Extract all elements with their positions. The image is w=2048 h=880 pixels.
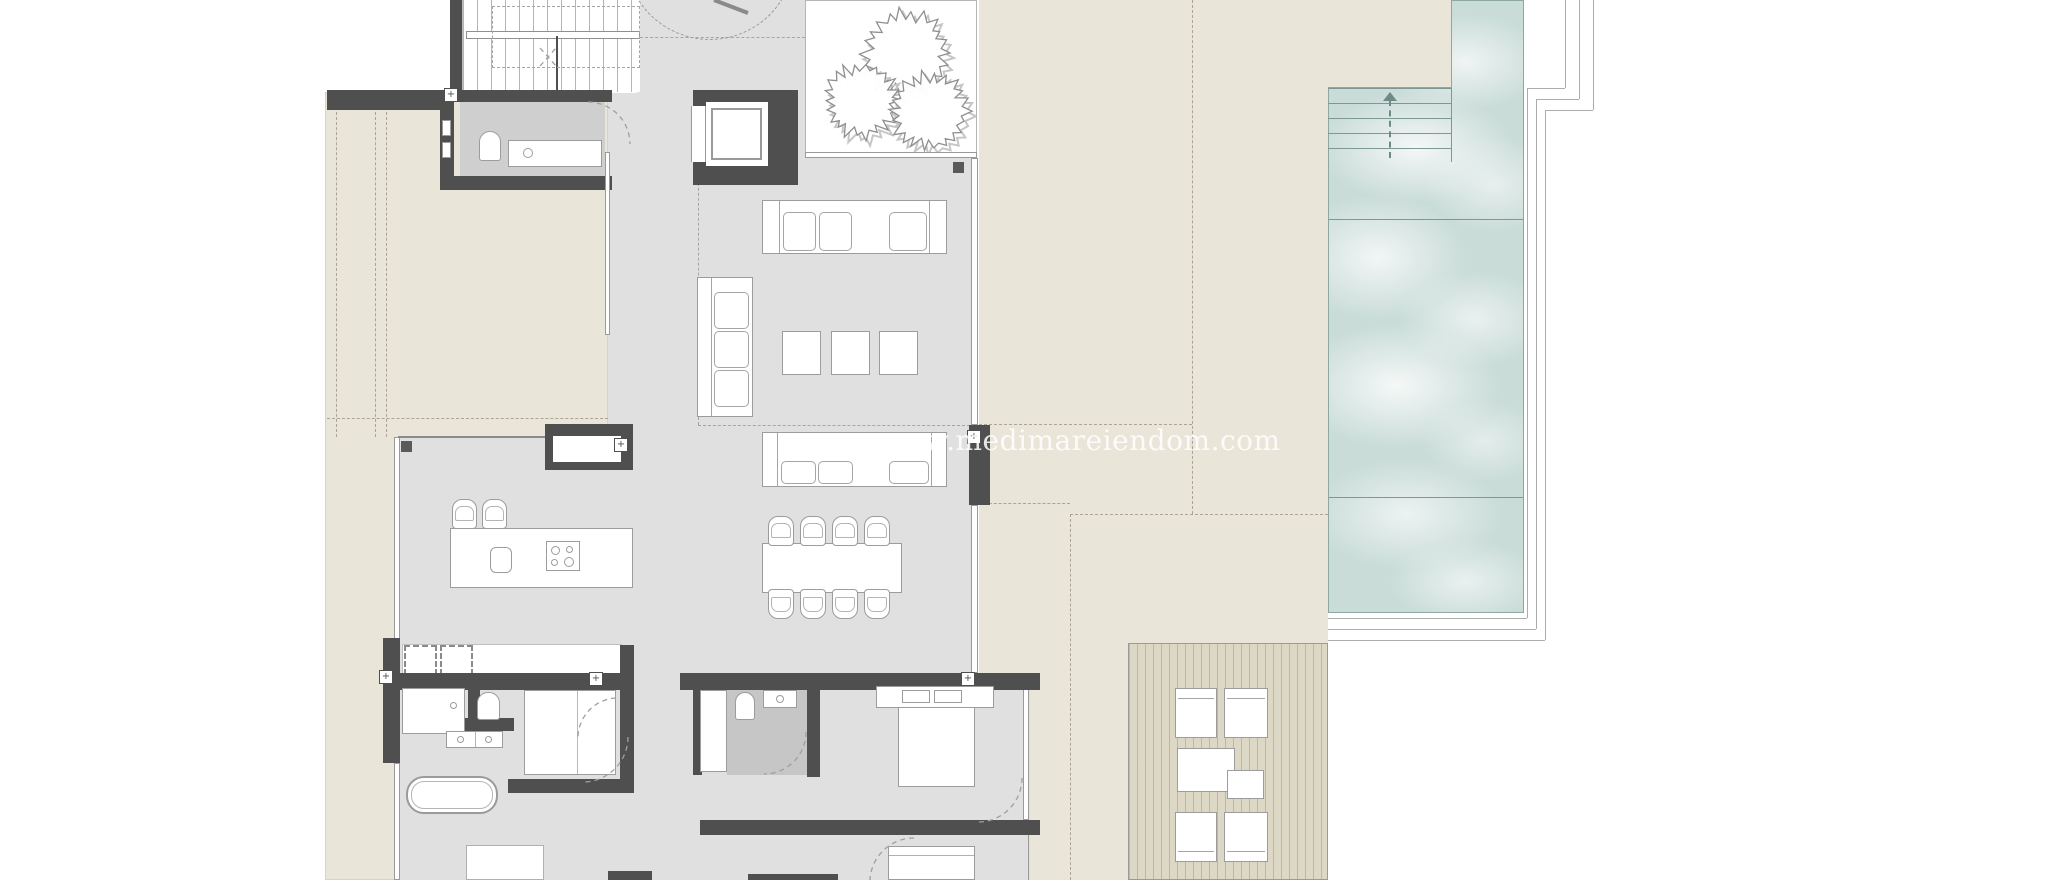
- dining-chair: [864, 516, 890, 546]
- window-east: [971, 505, 978, 673]
- double-bed: [898, 707, 975, 787]
- pool-frame: [1328, 640, 1545, 641]
- boundary-dash: [1070, 514, 1071, 880]
- pool-frame: [1579, 0, 1580, 99]
- dining-chair: [800, 589, 826, 619]
- bed-pillow: [902, 690, 930, 703]
- wall: [450, 0, 462, 92]
- pool-frame: [1545, 110, 1546, 640]
- column-marker: +: [379, 670, 393, 684]
- ensuite-shower: [700, 690, 727, 772]
- bar-stool: [452, 499, 477, 529]
- shower: [402, 688, 465, 734]
- floor-plan-canvas: + + + + + + www.medimareiendom.com: [0, 0, 2048, 880]
- boundary-dash: [327, 418, 608, 419]
- corner-column: [401, 441, 412, 452]
- pool-steps-arrow: [1389, 100, 1391, 158]
- pool-frame: [1536, 99, 1579, 100]
- pool-frame: [1328, 618, 1527, 619]
- second-bed: [888, 846, 975, 880]
- elevator-car: [711, 108, 762, 160]
- pillar-west: [383, 638, 400, 763]
- watermark: www.medimareiendom.com: [876, 424, 1281, 457]
- window-east: [971, 158, 978, 425]
- sun-lounger: [1224, 812, 1268, 862]
- boundary-dash: [386, 112, 387, 437]
- corner-column: [953, 162, 964, 173]
- wall: [450, 90, 612, 102]
- column-marker: +: [444, 88, 458, 102]
- coffee-table: [831, 331, 870, 375]
- wall-ensuite-east: [807, 690, 820, 777]
- pool-notch: [1328, 0, 1452, 88]
- dining-chair: [768, 516, 794, 546]
- kitchen-sink: [490, 547, 512, 573]
- sun-lounger: [1224, 688, 1268, 738]
- sofa-top: [762, 200, 947, 254]
- staircase-dash-outline: [492, 6, 640, 68]
- boundary-dash: [336, 112, 337, 437]
- dining-chair: [864, 589, 890, 619]
- column-marker: +: [589, 672, 603, 686]
- cooktop: [546, 541, 580, 571]
- wall-window-inset: [442, 142, 451, 158]
- dining-chair: [832, 516, 858, 546]
- deck-side-table: [1227, 770, 1264, 799]
- wall: [440, 176, 612, 190]
- ensuite-toilet: [735, 692, 755, 720]
- appliance-niche: [404, 645, 437, 675]
- toilet: [477, 692, 500, 720]
- sofa-left: [697, 277, 753, 417]
- dining-chair: [768, 589, 794, 619]
- drain-icon: [450, 702, 457, 709]
- pool-frame: [1527, 88, 1565, 89]
- appliance-niche: [440, 645, 473, 675]
- window-west: [394, 437, 400, 640]
- basin-icon: [523, 148, 533, 158]
- coffee-table: [782, 331, 821, 375]
- dining-chair: [800, 516, 826, 546]
- kitchen-sill-line: [398, 436, 545, 438]
- trees-icon: [806, 1, 977, 155]
- column-marker: +: [614, 438, 628, 452]
- double-washbasin: [446, 731, 503, 748]
- sun-lounger: [1175, 688, 1217, 738]
- coffee-table: [879, 331, 918, 375]
- pool-steps-arrowhead: [1383, 92, 1397, 101]
- wall-slab: [327, 90, 450, 110]
- dining-table: [762, 543, 902, 593]
- pool-lane-line: [1329, 219, 1523, 220]
- boundary-dash: [979, 503, 1070, 504]
- kitchen-island: [450, 528, 633, 588]
- wall-stub: [748, 874, 838, 880]
- wall-closet: [620, 645, 634, 793]
- kitchen-cabinet-inset: [553, 436, 621, 462]
- wall-stub: [608, 871, 652, 880]
- window-west: [394, 763, 400, 880]
- ensuite-washbasin: [763, 690, 797, 708]
- dining-chair: [832, 589, 858, 619]
- bed-pillow: [934, 690, 962, 703]
- pool-lane-line: [1329, 497, 1523, 498]
- elevator-door: [691, 106, 706, 162]
- pool-frame: [1536, 99, 1537, 629]
- pool-frame: [1593, 0, 1594, 110]
- column-marker: +: [961, 672, 975, 686]
- wall-bedroom-south: [700, 820, 1040, 835]
- window-bedroom: [1023, 688, 1029, 820]
- laundry-unit: [466, 845, 544, 880]
- window-hall: [605, 152, 610, 335]
- window-sill: [805, 152, 977, 158]
- wall-window-inset: [442, 120, 451, 136]
- pool-frame: [1527, 88, 1528, 618]
- pool-frame: [1565, 0, 1566, 88]
- planter: [805, 0, 977, 155]
- pool-frame: [1328, 629, 1536, 630]
- boundary-dash: [1070, 514, 1328, 515]
- boundary-dash: [375, 112, 376, 437]
- pool-frame: [1545, 110, 1593, 111]
- wall-closet-bottom: [508, 779, 634, 793]
- bathtub: [406, 776, 498, 814]
- wardrobe: [524, 690, 616, 775]
- guest-wc-toilet: [479, 131, 501, 161]
- sun-lounger: [1175, 812, 1217, 862]
- bar-stool: [482, 499, 507, 529]
- guest-wc-washbasin: [508, 140, 602, 167]
